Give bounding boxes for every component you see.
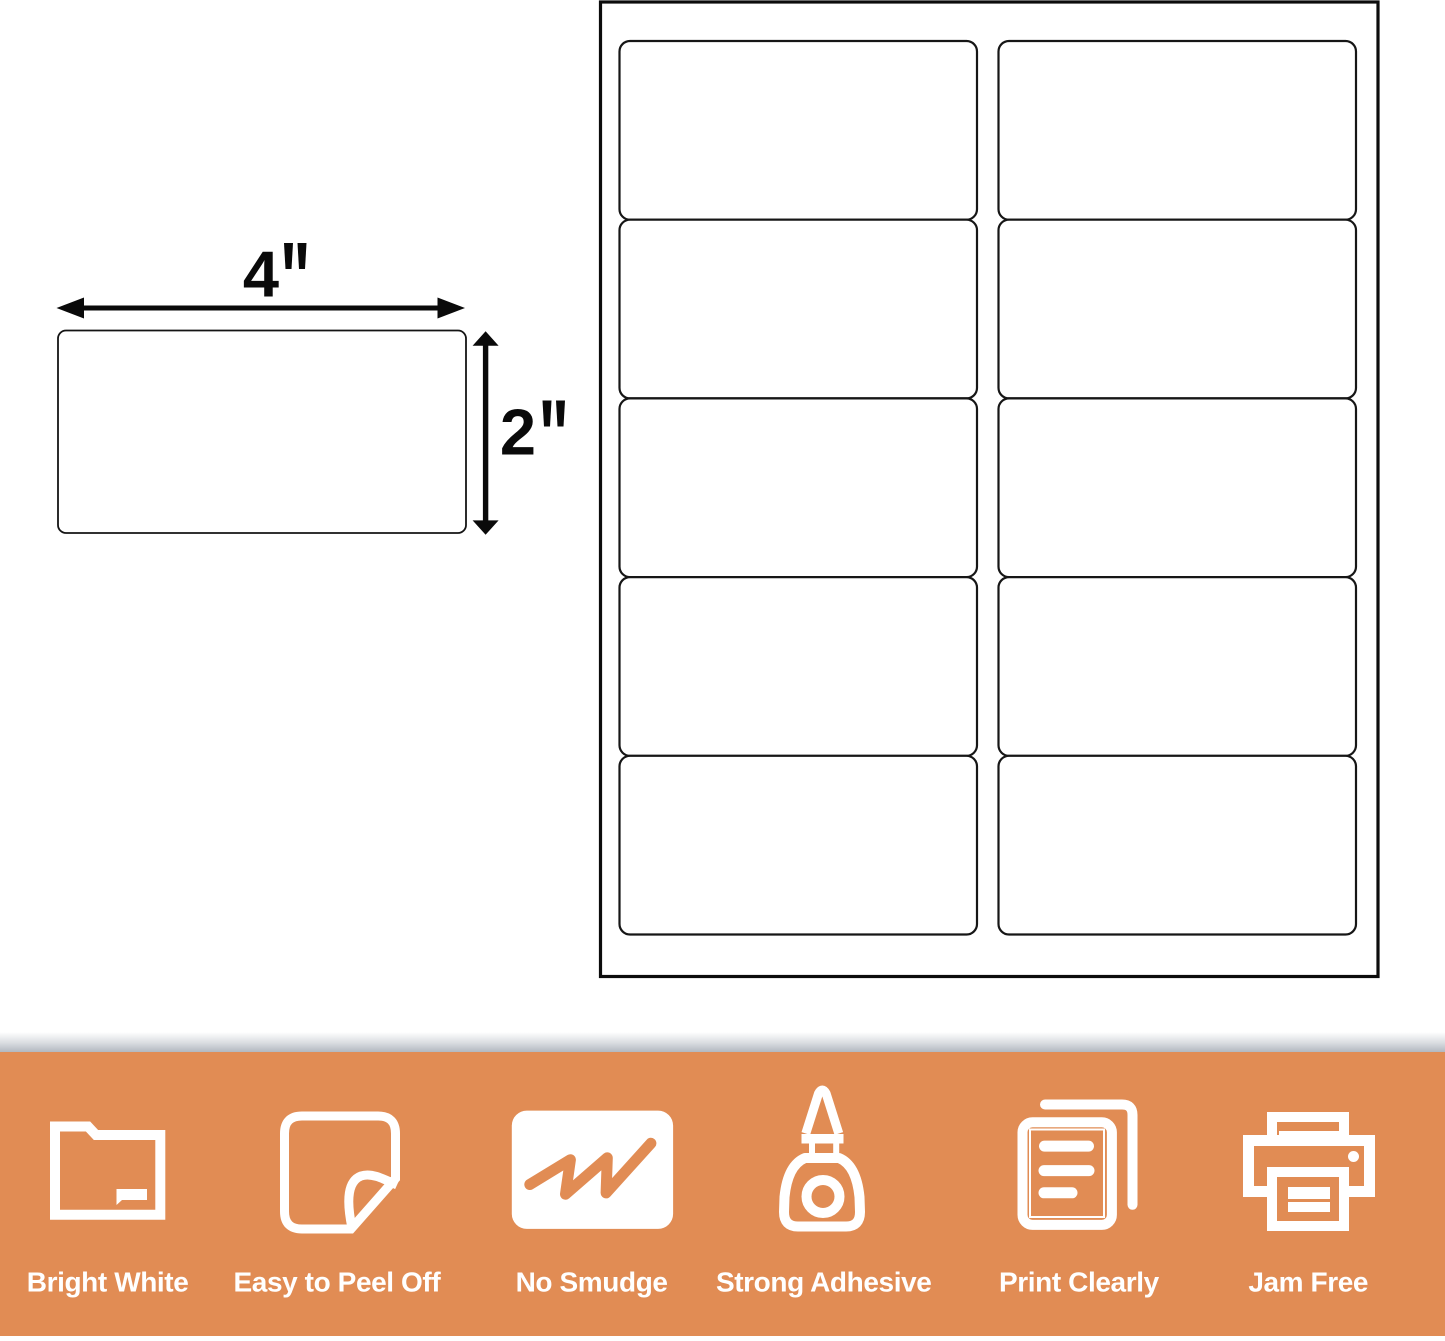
svg-text:Print Clearly: Print Clearly: [999, 1267, 1160, 1298]
svg-text:Easy to Peel Off: Easy to Peel Off: [234, 1267, 442, 1298]
svg-text:Bright White: Bright White: [27, 1267, 189, 1298]
svg-text:2: 2: [500, 396, 536, 469]
svg-text:No Smudge: No Smudge: [516, 1267, 668, 1298]
svg-text:Strong Adhesive: Strong Adhesive: [716, 1267, 931, 1298]
svg-text:4: 4: [243, 238, 279, 311]
svg-text:Jam Free: Jam Free: [1248, 1267, 1368, 1298]
